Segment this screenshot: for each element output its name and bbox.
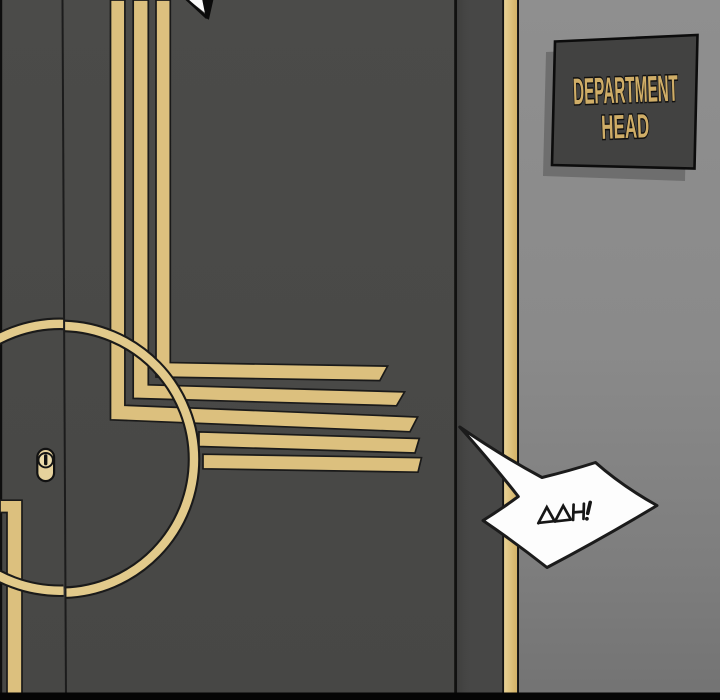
- svg-text:HEAD: HEAD: [601, 108, 650, 147]
- svg-text:DEPARTMENT: DEPARTMENT: [572, 68, 679, 113]
